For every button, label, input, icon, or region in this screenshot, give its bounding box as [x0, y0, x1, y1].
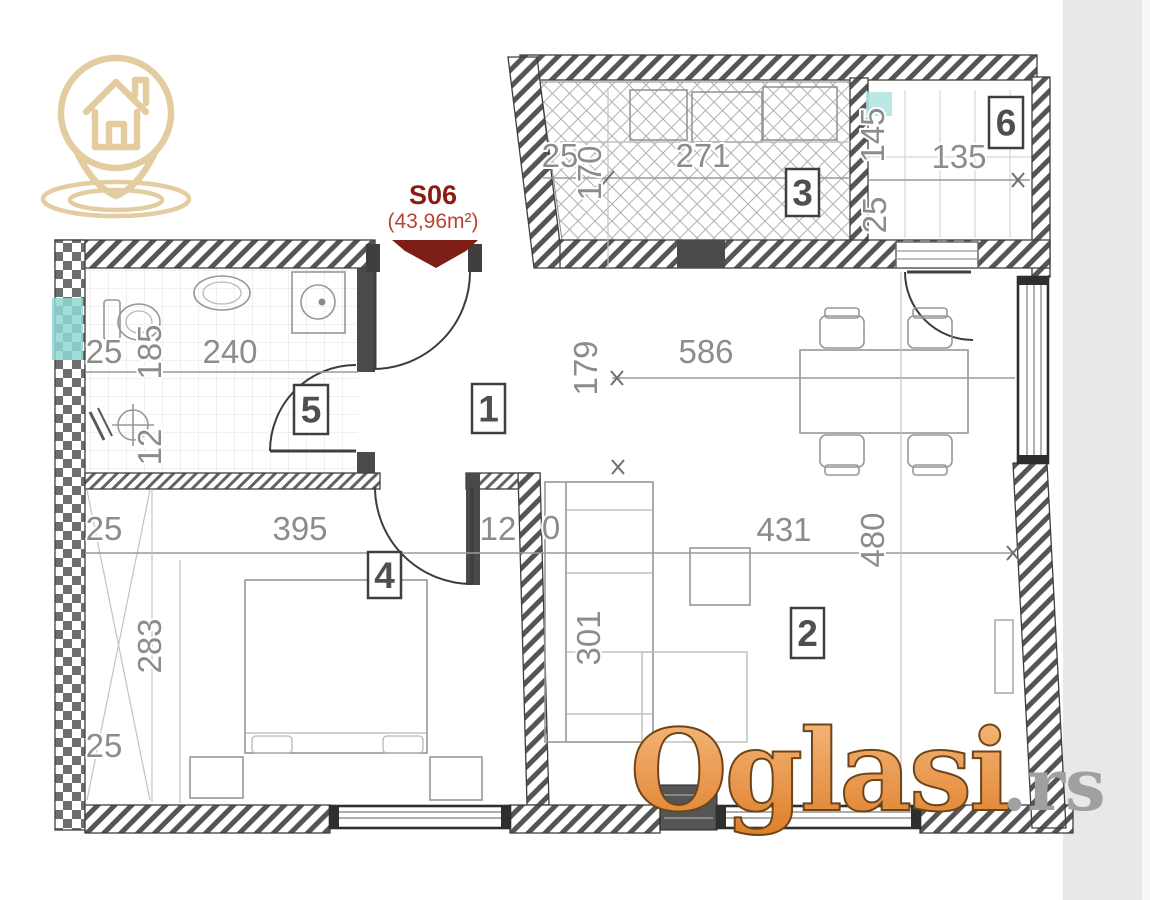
room-label-3: 3 — [786, 169, 819, 216]
svg-text:3: 3 — [792, 173, 813, 214]
svg-text:6: 6 — [996, 103, 1017, 144]
nightstand — [190, 757, 243, 798]
dimension-label: 12 — [480, 510, 517, 547]
window-bedroom-bottom — [330, 806, 510, 828]
terrace-threshold — [677, 240, 725, 268]
unit-code: S06 — [409, 180, 457, 210]
floorplan-page: 2517027114513525251852401217958625395120… — [0, 0, 1150, 900]
balcony-door — [905, 272, 973, 340]
dimension-label: 240 — [202, 333, 257, 370]
balcony-door-threshold — [896, 242, 978, 268]
pillow — [252, 736, 292, 753]
dimension-label: 145 — [854, 107, 891, 162]
dimension-label: 301 — [570, 610, 607, 665]
house-icon — [86, 80, 146, 147]
dining-chair — [908, 308, 952, 348]
wall-bathroom-hall — [357, 268, 375, 372]
page-edge-margin — [1142, 0, 1150, 900]
wall-bathroom-hall-stub — [357, 452, 375, 473]
svg-text:5: 5 — [301, 390, 322, 431]
dimension-label: 25 — [86, 333, 123, 370]
window-living-right — [1018, 277, 1048, 463]
room-label-6: 6 — [989, 97, 1023, 148]
unit-label: S06 (43,96m²) — [387, 180, 478, 268]
room-label-2: 2 — [791, 608, 824, 658]
dimension-label: 431 — [756, 511, 811, 548]
agency-logo — [43, 58, 189, 216]
wall-bottom-left — [85, 805, 330, 833]
dining-table — [800, 350, 968, 433]
nightstand — [430, 757, 482, 800]
watermark-suffix: .rs — [1002, 742, 1106, 827]
dimension-label: 179 — [567, 340, 604, 395]
right-wall-niche — [995, 620, 1013, 693]
dimension-label: 0 — [542, 509, 560, 546]
room-label-5: 5 — [294, 385, 328, 434]
entry-jamb-right — [468, 244, 482, 272]
dimension-label: 271 — [675, 137, 730, 174]
unit-ribbon — [392, 240, 478, 268]
wall-top — [520, 55, 1037, 80]
dimension-label: 586 — [678, 333, 733, 370]
dimension-label: 185 — [131, 324, 168, 379]
floorplan-drawing: 2517027114513525251852401217958625395120… — [0, 0, 1150, 900]
wall-bathroom-top — [55, 240, 375, 268]
dimension-label: 25 — [86, 510, 123, 547]
dimension-label: 170 — [571, 145, 608, 200]
dimension-label: 283 — [131, 618, 168, 673]
dining-chair — [820, 308, 864, 348]
watermark-main: Oglasi — [630, 706, 1009, 837]
dimension-label: 480 — [854, 512, 891, 567]
room-label-1: 1 — [472, 384, 505, 433]
entry-door — [373, 272, 470, 369]
dimension-label: 395 — [272, 510, 327, 547]
unit-area: (43,96m²) — [387, 210, 478, 233]
dimension-label: 25 — [856, 197, 893, 234]
shaft-marker-bathroom — [52, 298, 83, 360]
dining-chair — [820, 435, 864, 475]
svg-text:4: 4 — [374, 555, 395, 596]
wall-bedroom-top — [85, 473, 380, 489]
side-table — [690, 548, 750, 605]
dining-chair — [908, 435, 952, 475]
pillow — [383, 736, 423, 753]
svg-text:1: 1 — [478, 389, 499, 430]
room-label-4: 4 — [368, 552, 401, 598]
dimension-label: 135 — [931, 138, 986, 175]
dimension-label: 25 — [86, 727, 123, 764]
bed — [245, 580, 427, 753]
svg-text:2: 2 — [797, 613, 818, 654]
dimension-label: 12 — [131, 429, 168, 466]
entry-jamb-left — [366, 244, 380, 272]
